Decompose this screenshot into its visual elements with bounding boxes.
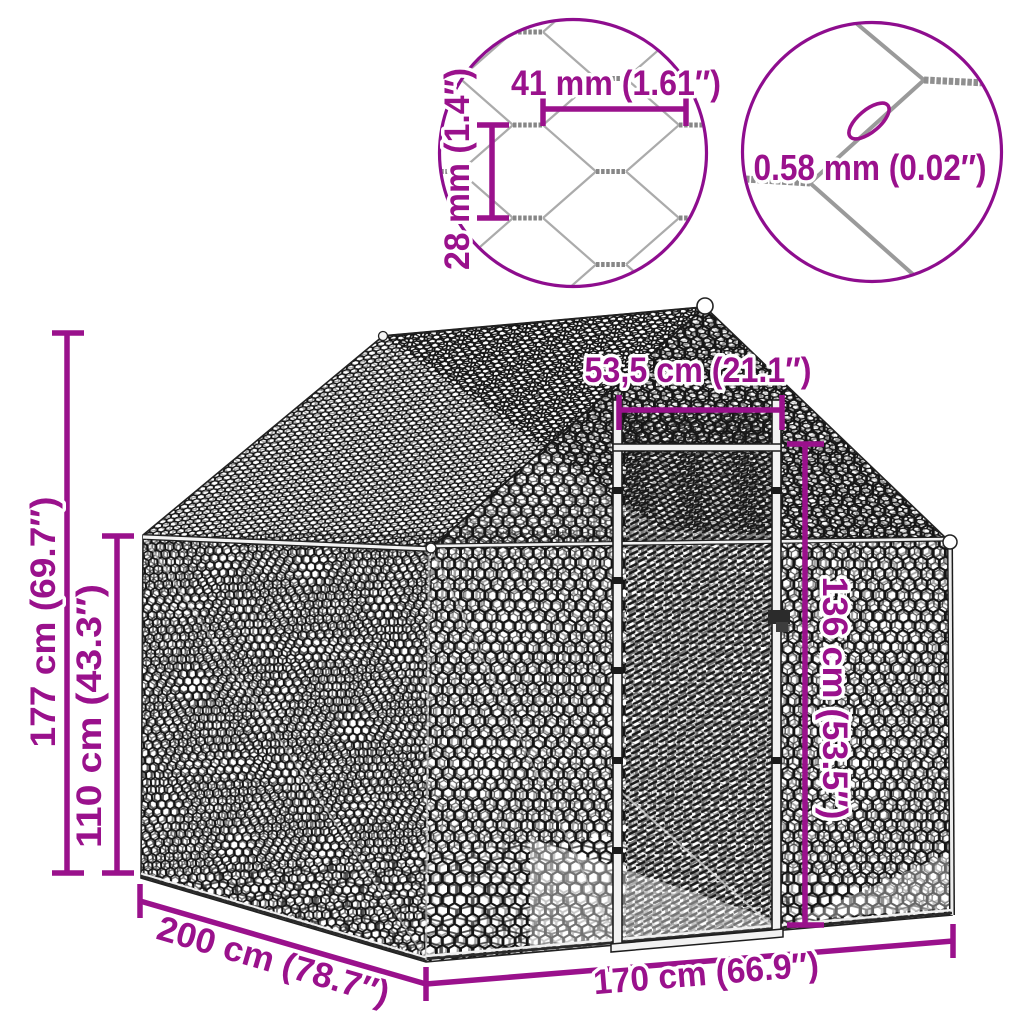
svg-text:110 cm (43.3″): 110 cm (43.3″) — [70, 584, 109, 848]
svg-text:28 mm (1.4″): 28 mm (1.4″) — [438, 68, 477, 270]
svg-text:41 mm (1.61″): 41 mm (1.61″) — [511, 64, 721, 103]
svg-text:0.58 mm (0.02″): 0.58 mm (0.02″) — [754, 147, 987, 188]
svg-text:177 cm (69.7″): 177 cm (69.7″) — [24, 497, 63, 748]
svg-text:53,5 cm (21.1″): 53,5 cm (21.1″) — [585, 351, 812, 390]
svg-text:136 cm (53.5″): 136 cm (53.5″) — [815, 577, 854, 820]
